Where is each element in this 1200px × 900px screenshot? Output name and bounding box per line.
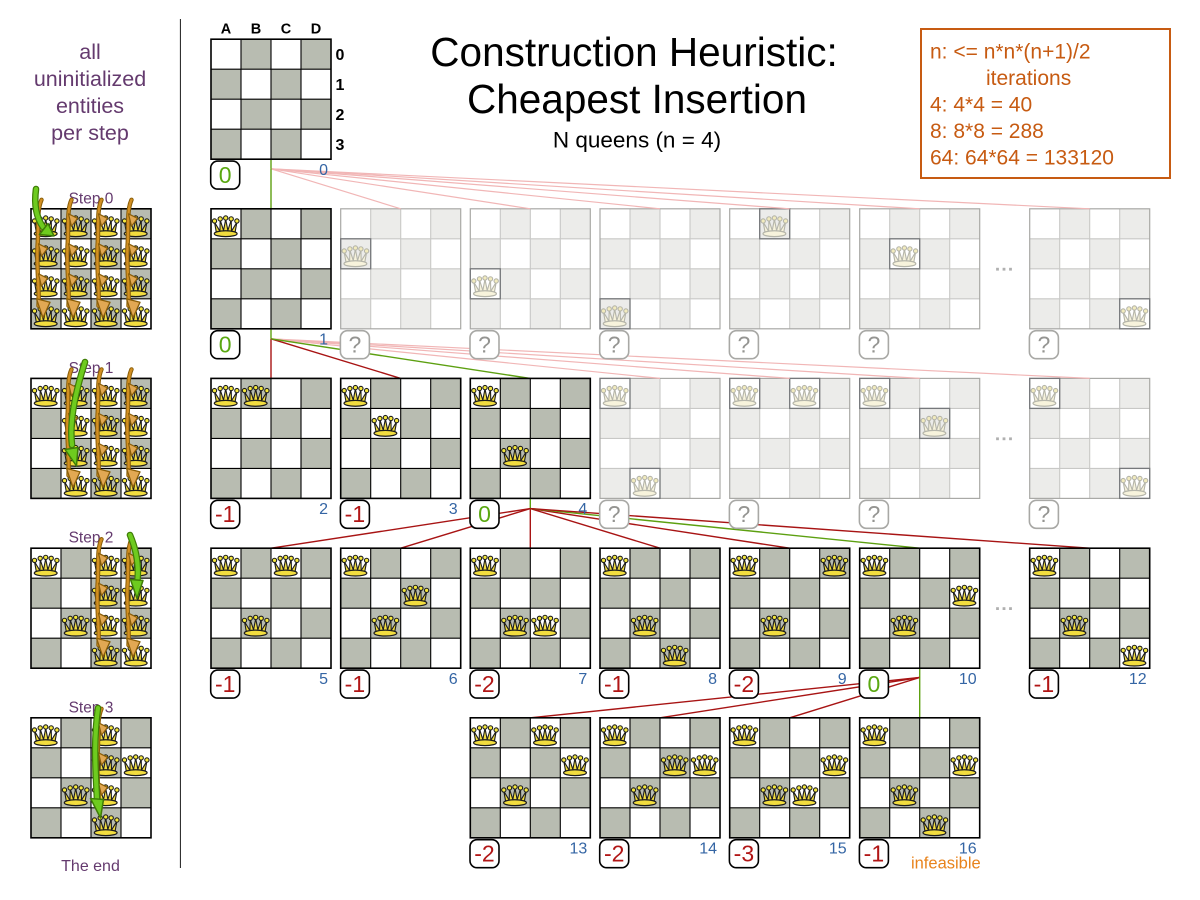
svg-text:N queens (n = 4): N queens (n = 4)	[553, 128, 721, 153]
svg-text:3: 3	[336, 137, 345, 154]
svg-text:per step: per step	[51, 121, 129, 145]
svg-text:entities: entities	[56, 94, 124, 118]
svg-text:?: ?	[868, 501, 881, 527]
svg-text:-1: -1	[215, 671, 235, 697]
svg-text:13: 13	[570, 841, 588, 858]
svg-text:?: ?	[868, 332, 881, 358]
svg-text:8: 8	[708, 671, 717, 688]
svg-text:-2: -2	[474, 671, 494, 697]
svg-text:-1: -1	[864, 841, 884, 867]
svg-text:-1: -1	[345, 501, 365, 527]
svg-text:0: 0	[336, 47, 345, 64]
svg-text:Step 0: Step 0	[69, 190, 114, 207]
svg-text:n: <= n*n*(n+1)/2: n: <= n*n*(n+1)/2	[930, 41, 1091, 64]
svg-text:all: all	[79, 40, 101, 64]
svg-text:uninitialized: uninitialized	[34, 67, 146, 91]
svg-text:-1: -1	[215, 501, 235, 527]
svg-text:1: 1	[319, 332, 328, 349]
svg-text:Cheapest Insertion: Cheapest Insertion	[467, 76, 807, 122]
svg-text:?: ?	[349, 332, 362, 358]
svg-text:15: 15	[829, 841, 847, 858]
svg-text:2: 2	[319, 501, 328, 518]
svg-text:-2: -2	[734, 671, 754, 697]
svg-text:?: ?	[1038, 332, 1051, 358]
svg-text:Step 1: Step 1	[69, 360, 114, 377]
svg-text:10: 10	[959, 671, 977, 688]
svg-text:?: ?	[608, 501, 621, 527]
svg-text:5: 5	[319, 671, 328, 688]
svg-text:0: 0	[478, 501, 491, 527]
svg-text:infeasible: infeasible	[911, 855, 981, 873]
svg-text:Step 3: Step 3	[69, 699, 114, 716]
svg-text:1: 1	[336, 77, 345, 94]
svg-text:iterations: iterations	[986, 67, 1071, 90]
svg-text:?: ?	[1038, 501, 1051, 527]
svg-text:9: 9	[838, 671, 847, 688]
svg-text:A: A	[221, 22, 232, 38]
svg-text:-1: -1	[345, 671, 365, 697]
svg-text:D: D	[311, 22, 321, 38]
svg-text:2: 2	[336, 107, 345, 124]
svg-text:-3: -3	[734, 841, 754, 867]
svg-text:4: 4*4 = 40: 4: 4*4 = 40	[930, 94, 1032, 117]
svg-text:-1: -1	[604, 671, 624, 697]
svg-text:7: 7	[578, 671, 587, 688]
svg-text:C: C	[281, 22, 292, 38]
svg-text:0: 0	[219, 332, 232, 358]
svg-text:?: ?	[478, 332, 491, 358]
svg-text:8: 8*8 = 288: 8: 8*8 = 288	[930, 120, 1044, 143]
svg-text:14: 14	[699, 841, 717, 858]
svg-text:-2: -2	[604, 841, 624, 867]
svg-text:0: 0	[868, 671, 881, 697]
svg-text:Step 2: Step 2	[69, 530, 114, 547]
svg-text:0: 0	[319, 162, 328, 179]
svg-text:6: 6	[449, 671, 458, 688]
svg-text:4: 4	[578, 501, 587, 518]
svg-text:12: 12	[1129, 671, 1147, 688]
svg-text:-2: -2	[474, 841, 494, 867]
svg-text:The end: The end	[61, 858, 120, 875]
svg-text:-1: -1	[1034, 671, 1054, 697]
svg-text:64: 64*64 = 133120: 64: 64*64 = 133120	[930, 147, 1114, 170]
svg-text:0: 0	[219, 162, 232, 188]
svg-text:B: B	[251, 22, 261, 38]
svg-text:3: 3	[449, 501, 458, 518]
svg-text:?: ?	[738, 501, 751, 527]
svg-text:?: ?	[738, 332, 751, 358]
svg-text:?: ?	[608, 332, 621, 358]
svg-text:Construction Heuristic:: Construction Heuristic:	[430, 29, 837, 75]
